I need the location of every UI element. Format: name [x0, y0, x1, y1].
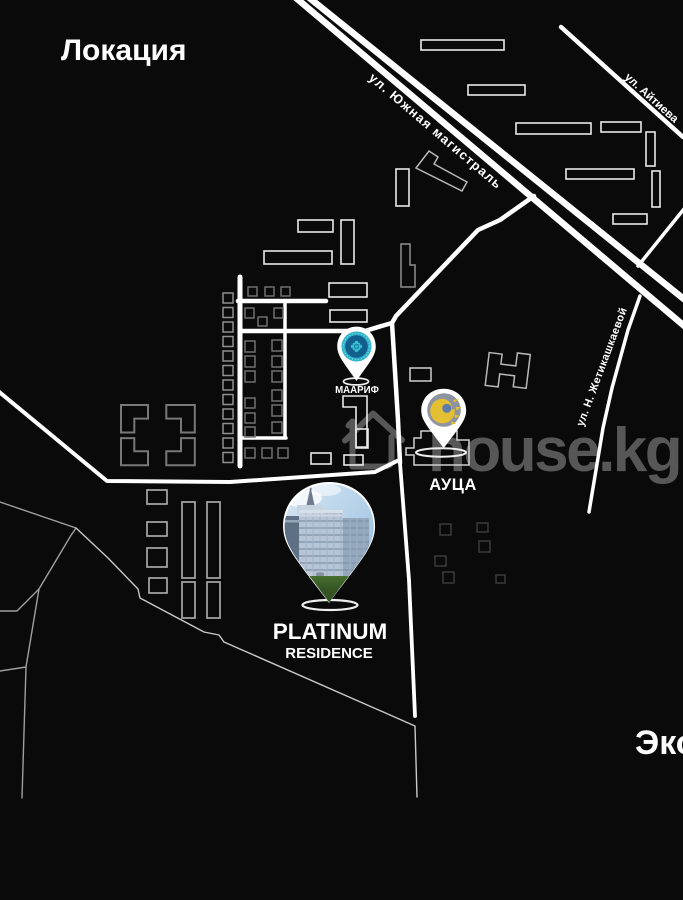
svg-text:PLATINUM: PLATINUM	[273, 619, 388, 644]
svg-text:МААРИФ: МААРИФ	[335, 385, 379, 396]
svg-text:АУЦА: АУЦА	[429, 476, 477, 494]
svg-text:house.kg: house.kg	[428, 416, 680, 485]
svg-text:Эко: Эко	[635, 724, 683, 762]
svg-text:RESIDENCE: RESIDENCE	[285, 645, 373, 662]
svg-text:Локация: Локация	[61, 34, 186, 67]
